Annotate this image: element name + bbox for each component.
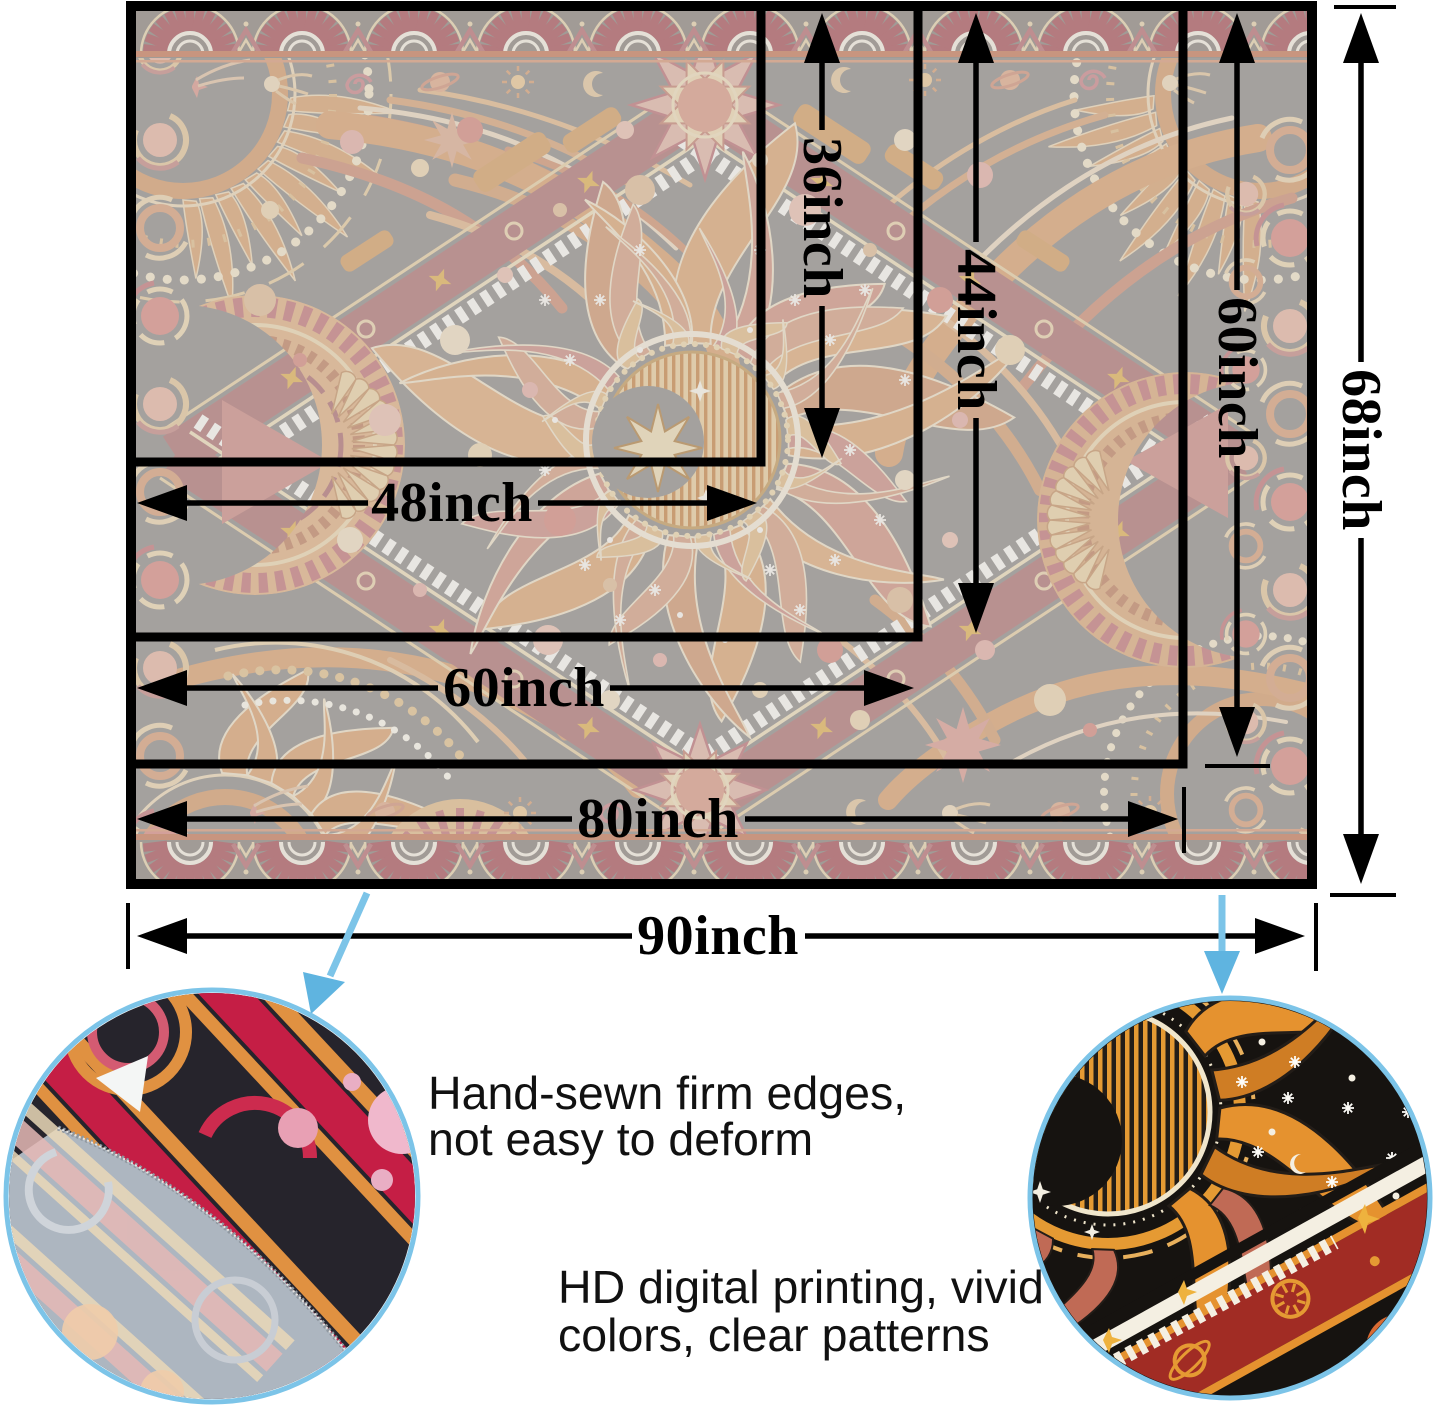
svg-text:48inch: 48inch <box>371 472 533 534</box>
svg-text:68inch: 68inch <box>1330 369 1392 531</box>
svg-text:Hand-sewn firm edges,: Hand-sewn firm edges, <box>428 1067 906 1119</box>
svg-text:90inch: 90inch <box>637 905 799 967</box>
svg-text:colors, clear patterns: colors, clear patterns <box>558 1309 990 1361</box>
svg-text:36inch: 36inch <box>791 137 853 299</box>
svg-text:44inch: 44inch <box>945 249 1007 411</box>
svg-text:60inch: 60inch <box>1206 297 1268 459</box>
svg-text:HD digital printing, vivid: HD digital printing, vivid <box>558 1261 1044 1313</box>
svg-text:not easy to deform: not easy to deform <box>428 1113 813 1165</box>
svg-text:80inch: 80inch <box>577 788 739 850</box>
svg-text:60inch: 60inch <box>443 657 605 719</box>
